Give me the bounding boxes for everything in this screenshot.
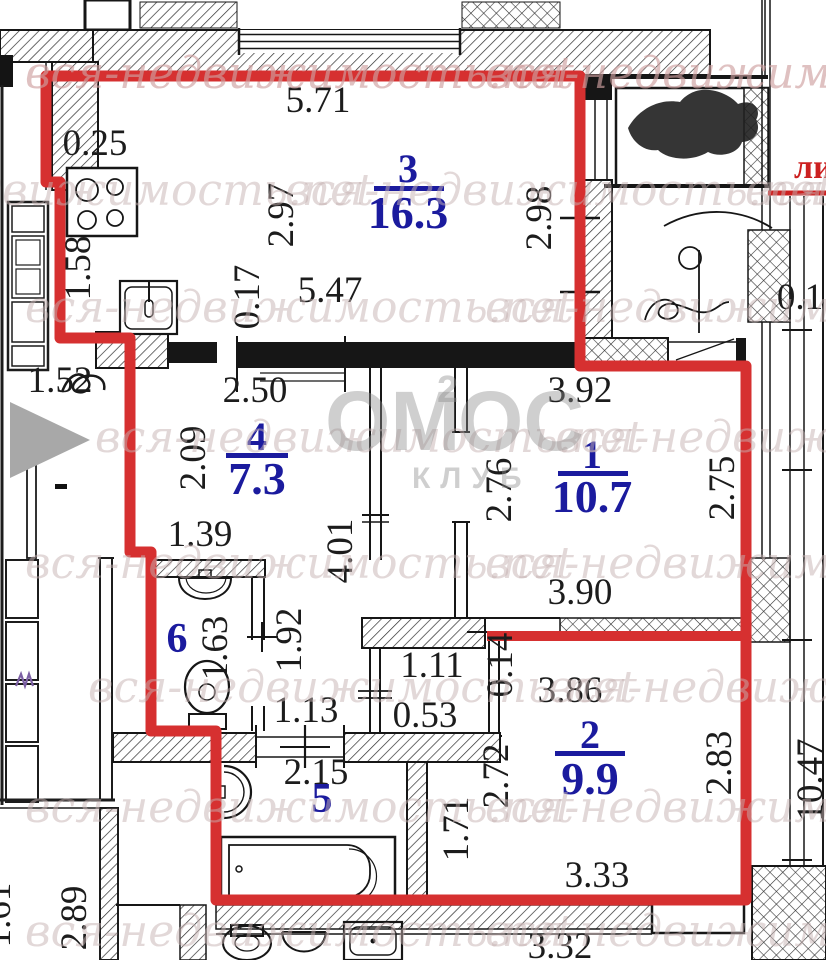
bathtub [221,837,395,898]
watermark-text: вся-недвижимость.net [485,538,826,589]
room-2-number: 2 [580,712,600,757]
floor-plan-svg: 3 16.3 4 7.3 1 10.7 2 9.9 5 6 5.71 0.25 … [0,0,826,960]
room-1-area: 10.7 [552,471,633,522]
dim-2-50: 2.50 [223,370,288,411]
watermark-text: вся-недвижимость.net [745,165,826,216]
watermark-text: вся-недвижимость.net [485,782,826,833]
watermark-text: вся-недвижимость.net [485,48,826,99]
watermark-text: вся-недвижимость.net [485,906,826,957]
floor-plan-page: 3 16.3 4 7.3 1 10.7 2 9.9 5 6 5.71 0.25 … [0,0,826,960]
watermark-text: вся-недвижимость.net [485,282,826,333]
logo-sup: 2 [437,369,458,411]
dim-3-33: 3.33 [565,855,630,896]
logo-post: ОС [458,374,584,468]
dim-1-61: 1.61 [0,883,19,948]
room-6-number: 6 [167,616,188,662]
dim-1-52: 1.52 [28,360,93,401]
dim-2-75: 2.75 [702,456,743,521]
logo-sub: КЛУБ [412,462,532,495]
watermark-text: вся-недвижимость.net [548,662,826,713]
dim-0-25: 0.25 [63,123,128,164]
watermark-text: вся-недвижимость.net [555,412,826,463]
